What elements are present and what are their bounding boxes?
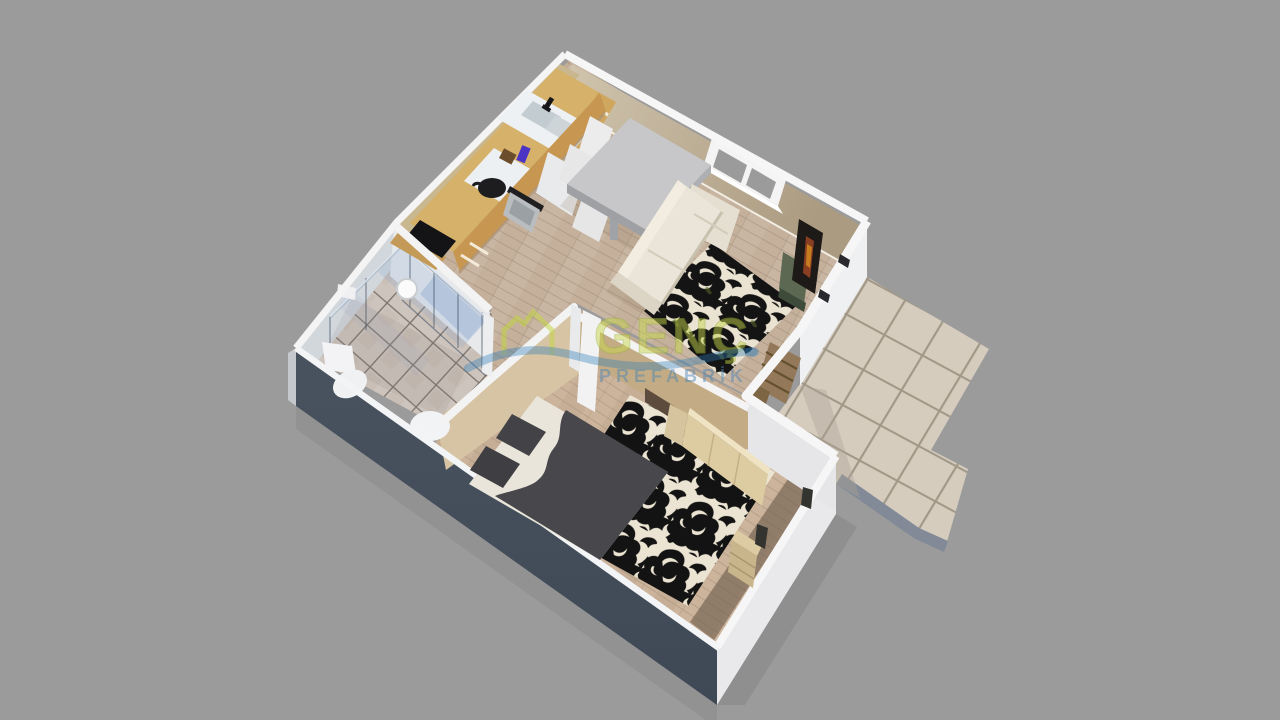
- svg-text:PREFABRİK: PREFABRİK: [599, 366, 748, 386]
